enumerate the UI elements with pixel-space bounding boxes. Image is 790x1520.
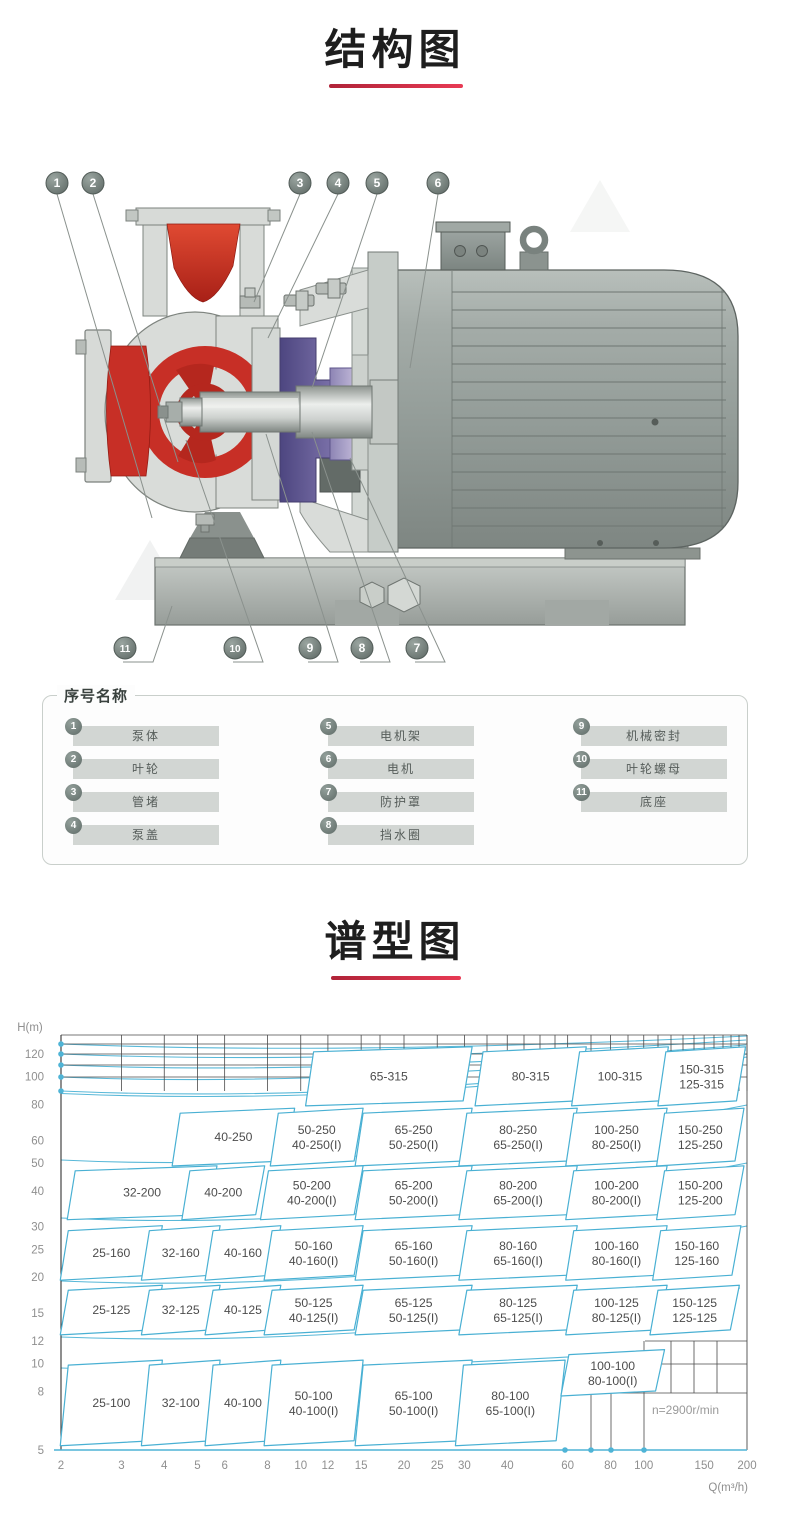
region-label: 25-100 [92, 1396, 130, 1410]
axis-dot [58, 1088, 64, 1094]
legend-part-label: 机械密封 [581, 726, 727, 746]
region-label: 40-160(I) [289, 1254, 338, 1268]
speed-annotation: n=2900r/min [652, 1403, 719, 1417]
callout-number: 8 [359, 641, 366, 655]
x-tick-label: 20 [398, 1460, 411, 1472]
chart-region-40-200: 40-200 [182, 1166, 265, 1220]
chart-region-100-100: 100-10080-100(I) [561, 1350, 665, 1396]
callout-number: 2 [90, 176, 97, 190]
x-tick-label: 3 [118, 1460, 124, 1472]
legend-item-2: 2叶轮 [65, 751, 265, 777]
region-label: 125-160 [674, 1254, 719, 1268]
region-label: 80-100 [491, 1389, 529, 1403]
region-label: 100-200 [594, 1179, 639, 1193]
x-tick-label: 2 [58, 1460, 64, 1472]
region-label: 80-160 [499, 1239, 537, 1253]
axis-dot [588, 1447, 594, 1453]
region-label: 125-200 [678, 1194, 723, 1208]
callout-number: 6 [435, 176, 442, 190]
legend-num-badge: 11 [573, 784, 590, 801]
y-tick-label: 80 [31, 1099, 44, 1111]
callout-number: 7 [414, 641, 421, 655]
legend-num-badge: 10 [573, 751, 590, 768]
y-tick-label: 30 [31, 1222, 44, 1234]
chart-region-50-125: 50-12540-125(I) [264, 1285, 363, 1335]
y-tick-label: 8 [38, 1386, 44, 1398]
chart-region-80-200: 80-20065-200(I) [459, 1166, 577, 1220]
region-label: 65-250(I) [493, 1138, 542, 1152]
x-tick-label: 30 [458, 1460, 471, 1472]
axis-dot [58, 1062, 64, 1068]
chart-region-150-125: 150-125125-125 [650, 1285, 739, 1335]
callout-number: 9 [307, 641, 314, 655]
callout-8: 8 [351, 637, 373, 659]
region-label: 40-100(I) [289, 1404, 338, 1418]
region-label: 65-200(I) [493, 1194, 542, 1208]
region-label: 25-160 [92, 1246, 130, 1260]
region-label: 100-125 [594, 1296, 639, 1310]
pump-structure-diagram: 1234561110987 [0, 140, 790, 685]
y-tick-label: 50 [31, 1158, 44, 1170]
region-label: 40-200(I) [287, 1194, 336, 1208]
legend-part-label: 泵盖 [73, 825, 219, 845]
region-label: 65-100 [395, 1389, 433, 1403]
legend-part-label: 叶轮 [73, 759, 219, 779]
y-axis-label: H(m) [17, 1022, 43, 1034]
axis-dot [58, 1051, 64, 1057]
x-tick-label: 100 [634, 1460, 653, 1472]
chart-region-100-160: 100-16080-160(I) [566, 1226, 667, 1281]
region-label: 80-315 [512, 1069, 550, 1083]
region-label: 32-125 [162, 1303, 200, 1317]
region-label: 50-100 [295, 1389, 333, 1403]
page: 结构图 [0, 0, 790, 1520]
callout-9: 9 [299, 637, 321, 659]
pipe-plug [240, 296, 260, 308]
motor-bolt [652, 419, 659, 426]
legend-part-label: 电机 [328, 759, 474, 779]
chart-region-150-160: 150-160125-160 [653, 1226, 741, 1281]
structure-diagram-title: 结构图 [0, 16, 790, 77]
region-label: 40-125(I) [289, 1311, 338, 1325]
region-label: 32-200 [123, 1186, 161, 1200]
legend-item-1: 1泵体 [65, 718, 265, 744]
region-label: 50-125(I) [389, 1311, 438, 1325]
y-tick-label: 20 [31, 1272, 44, 1284]
region-label: 65-100(I) [486, 1404, 535, 1418]
spectrum-chart-title: 谱型图 [0, 908, 790, 969]
x-tick-label: 4 [161, 1460, 168, 1472]
x-tick-label: 6 [221, 1460, 227, 1472]
region-label: 80-125(I) [592, 1311, 641, 1325]
legend-num-badge: 8 [320, 817, 337, 834]
x-tick-label: 15 [355, 1460, 368, 1472]
callout-7: 7 [406, 637, 428, 659]
region-label: 40-200 [204, 1186, 242, 1200]
y-tick-label: 15 [31, 1308, 44, 1320]
region-label: 150-315 [679, 1062, 724, 1076]
legend-title: 序号名称 [57, 685, 135, 706]
region-label: 100-100 [590, 1359, 635, 1373]
lifting-eye [520, 229, 548, 270]
legend-part-label: 防护罩 [328, 792, 474, 812]
region-label: 50-100(I) [389, 1404, 438, 1418]
region-label: 32-160 [162, 1246, 200, 1260]
legend-part-label: 泵体 [73, 726, 219, 746]
pump-pedestal [180, 512, 264, 558]
legend-num-badge: 3 [65, 784, 82, 801]
region-label: 65-160(I) [493, 1254, 542, 1268]
suction-flange [136, 208, 270, 225]
chart-region-50-250: 50-25040-250(I) [270, 1108, 363, 1166]
region-label: 80-200 [499, 1179, 537, 1193]
chart-region-65-200: 65-20050-200(I) [355, 1166, 472, 1220]
region-label: 50-250 [298, 1123, 336, 1137]
chart-region-100-250: 100-25080-250(I) [566, 1108, 667, 1166]
callout-6: 6 [427, 172, 449, 194]
x-tick-label: 12 [322, 1460, 335, 1472]
axis-dot [608, 1447, 614, 1453]
x-tick-label: 80 [604, 1460, 617, 1472]
y-tick-label: 60 [31, 1135, 44, 1147]
region-label: 80-250 [499, 1123, 537, 1137]
chart-region-150-315: 150-315125-315 [658, 1047, 746, 1106]
legend-column-1: 1泵体2叶轮3管堵4泵盖 [65, 718, 265, 850]
region-label: 65-160 [395, 1239, 433, 1253]
region-label: 80-200(I) [592, 1194, 641, 1208]
region-label: 32-100 [162, 1396, 200, 1410]
region-label: 80-250(I) [592, 1138, 641, 1152]
chart-region-50-200: 50-20040-200(I) [260, 1166, 363, 1220]
legend-item-3: 3管堵 [65, 784, 265, 810]
motor-terminal-box [436, 222, 510, 270]
region-label: 150-125 [672, 1296, 717, 1310]
x-tick-label: 150 [695, 1460, 714, 1472]
region-label: 125-250 [678, 1138, 723, 1152]
x-tick-label: 60 [561, 1460, 574, 1472]
region-label: 65-200 [395, 1179, 433, 1193]
region-label: 100-250 [594, 1123, 639, 1137]
legend-num-badge: 6 [320, 751, 337, 768]
chart-region-150-250: 150-250125-250 [657, 1108, 744, 1166]
callout-4: 4 [327, 172, 349, 194]
spectrum-title-underline [331, 976, 461, 980]
chart-region-100-200: 100-20080-200(I) [566, 1166, 667, 1220]
callout-10: 10 [224, 637, 246, 659]
callout-number: 3 [297, 176, 304, 190]
legend-num-badge: 7 [320, 784, 337, 801]
region-label: 50-125 [295, 1296, 333, 1310]
region-label: 50-200 [293, 1179, 331, 1193]
y-tick-label: 10 [31, 1359, 44, 1371]
motor-body [396, 270, 738, 548]
y-tick-label: 120 [25, 1049, 44, 1061]
x-tick-label: 25 [431, 1460, 444, 1472]
callout-number: 1 [54, 176, 61, 190]
region-label: 50-160(I) [389, 1254, 438, 1268]
callout-5: 5 [366, 172, 388, 194]
axis-dot [641, 1447, 647, 1453]
region-label: 40-250 [214, 1130, 252, 1144]
region-label: 100-315 [598, 1069, 643, 1083]
legend-num-badge: 1 [65, 718, 82, 735]
legend-item-6: 6电机 [320, 751, 520, 777]
chart-region-50-160: 50-16040-160(I) [264, 1226, 363, 1281]
chart-region-65-315: 65-315 [306, 1047, 473, 1106]
region-label: 100-160 [594, 1239, 639, 1253]
region-label: 150-250 [678, 1123, 723, 1137]
legend-num-badge: 2 [65, 751, 82, 768]
y-tick-label: 12 [31, 1336, 44, 1348]
chart-region-80-125: 80-12565-125(I) [459, 1285, 577, 1335]
legend-part-label: 叶轮螺母 [581, 759, 727, 779]
region-label: 80-160(I) [592, 1254, 641, 1268]
legend-part-label: 底座 [581, 792, 727, 812]
region-label: 125-315 [679, 1077, 724, 1091]
region-label: 25-125 [92, 1303, 130, 1317]
callout-number: 10 [229, 644, 241, 655]
region-label: 50-200(I) [389, 1194, 438, 1208]
region-label: 40-100 [224, 1396, 262, 1410]
axis-dot [562, 1447, 568, 1453]
x-tick-label: 40 [501, 1460, 514, 1472]
axis-dot [58, 1041, 64, 1047]
legend-item-10: 10叶轮螺母 [573, 751, 773, 777]
axis-dot [58, 1074, 64, 1080]
callout-number: 5 [374, 176, 381, 190]
region-label: 40-125 [224, 1303, 262, 1317]
chart-region-150-200: 150-200125-200 [657, 1166, 744, 1220]
x-tick-label: 200 [737, 1460, 756, 1472]
structure-title-underline [329, 84, 463, 88]
chart-region-50-100: 50-10040-100(I) [264, 1360, 363, 1446]
region-label: 40-160 [224, 1246, 262, 1260]
chart-region-65-160: 65-16050-160(I) [355, 1226, 472, 1281]
callout-2: 2 [82, 172, 104, 194]
chart-region-80-250: 80-25065-250(I) [459, 1108, 577, 1166]
chart-region-80-160: 80-16065-160(I) [459, 1226, 577, 1281]
legend-num-badge: 5 [320, 718, 337, 735]
chart-region-80-315: 80-315 [475, 1047, 586, 1106]
legend-column-3: 9机械密封10叶轮螺母11底座 [573, 718, 773, 817]
region-label: 50-250(I) [389, 1138, 438, 1152]
legend-item-7: 7防护罩 [320, 784, 520, 810]
legend-part-label: 挡水圈 [328, 825, 474, 845]
region-label: 150-160 [674, 1239, 719, 1253]
x-tick-label: 8 [264, 1460, 270, 1472]
region-label: 65-315 [370, 1069, 408, 1083]
region-label: 125-125 [672, 1311, 717, 1325]
region-label: 80-125 [499, 1296, 537, 1310]
callout-number: 4 [335, 176, 342, 190]
region-label: 65-250 [395, 1123, 433, 1137]
legend-item-11: 11底座 [573, 784, 773, 810]
region-label: 80-100(I) [588, 1374, 637, 1388]
chart-region-80-100: 80-10065-100(I) [455, 1360, 565, 1446]
legend-item-5: 5电机架 [320, 718, 520, 744]
chart-region-65-125: 65-12550-125(I) [355, 1285, 472, 1335]
callout-11: 11 [114, 637, 136, 659]
legend-num-badge: 9 [573, 718, 590, 735]
y-tick-label: 40 [31, 1186, 44, 1198]
x-axis-label: Q(m³/h) [708, 1482, 748, 1494]
region-label: 150-200 [678, 1179, 723, 1193]
region-label: 40-250(I) [292, 1138, 341, 1152]
legend-num-badge: 4 [65, 817, 82, 834]
chart-region-65-250: 65-25050-250(I) [355, 1108, 472, 1166]
pump-selection-chart: 65-31580-315100-315150-315125-31540-2505… [0, 1000, 790, 1520]
region-label: 65-125(I) [493, 1311, 542, 1325]
legend-part-label: 管堵 [73, 792, 219, 812]
x-tick-label: 5 [194, 1460, 200, 1472]
callout-3: 3 [289, 172, 311, 194]
legend-item-4: 4泵盖 [65, 817, 265, 843]
legend-item-9: 9机械密封 [573, 718, 773, 744]
y-tick-label: 5 [38, 1445, 44, 1457]
region-label: 50-160 [295, 1239, 333, 1253]
callout-number: 11 [120, 644, 131, 655]
y-tick-label: 25 [31, 1244, 44, 1256]
x-tick-label: 10 [294, 1460, 307, 1472]
y-tick-label: 100 [25, 1072, 44, 1084]
legend-item-8: 8挡水圈 [320, 817, 520, 843]
region-label: 65-125 [395, 1296, 433, 1310]
chart-region-65-100: 65-10050-100(I) [355, 1360, 472, 1446]
chart-region-100-315: 100-315 [572, 1047, 669, 1106]
parts-legend: 序号名称 1泵体2叶轮3管堵4泵盖 5电机架6电机7防护罩8挡水圈 9机械密封1… [42, 695, 748, 865]
legend-column-2: 5电机架6电机7防护罩8挡水圈 [320, 718, 520, 850]
callout-1: 1 [46, 172, 68, 194]
legend-part-label: 电机架 [328, 726, 474, 746]
